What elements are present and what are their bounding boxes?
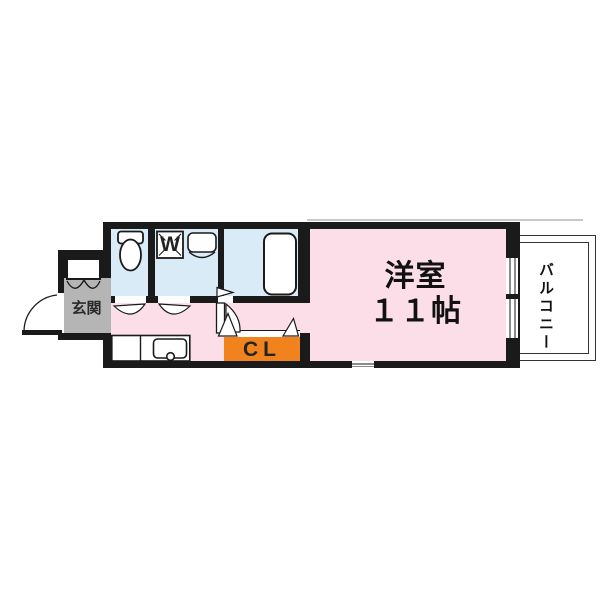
bath-door-swing [217, 288, 233, 298]
entrance-door-swing-arc [24, 295, 57, 331]
shoe-cabinet-curtain-line [67, 280, 100, 288]
closet-label: CL [224, 339, 300, 360]
main-room-label: 洋室 １１帖 [328, 259, 503, 329]
washing-machine-label: W [157, 234, 183, 255]
floor-plan: 洋室 １１帖 バルコニー CL W 玄関 [0, 0, 600, 600]
washbasin-front-curve [189, 252, 215, 258]
sink-faucet-icon [167, 353, 175, 361]
toilet-bowl-icon [120, 240, 141, 271]
washbasin-icon [188, 233, 216, 252]
main-room-name: 洋室 [328, 259, 503, 294]
washroom-door-swing [159, 304, 190, 314]
bathtub-icon [264, 234, 296, 295]
closet-door-swing-right [283, 319, 299, 337]
entrance-label: 玄関 [62, 301, 111, 316]
main-room-size: １１帖 [328, 294, 503, 329]
balcony-label: バルコニー [531, 251, 553, 363]
toilet-door-swing [114, 304, 145, 314]
